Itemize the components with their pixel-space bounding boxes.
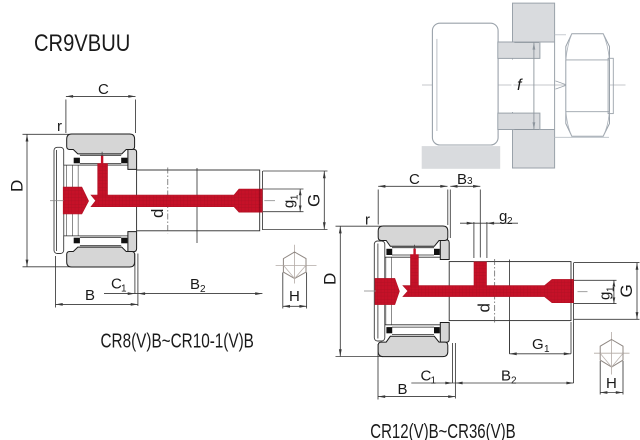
svg-text:1: 1	[544, 344, 550, 355]
svg-text:3: 3	[467, 176, 473, 187]
svg-text:D: D	[8, 180, 27, 192]
svg-text:f: f	[517, 77, 523, 94]
svg-text:2: 2	[200, 284, 206, 295]
svg-text:2: 2	[507, 216, 513, 227]
svg-text:B: B	[398, 381, 408, 398]
svg-text:1: 1	[431, 376, 437, 387]
svg-text:CR8(V)B~CR10-1(V)B: CR8(V)B~CR10-1(V)B	[101, 330, 254, 352]
svg-text:C: C	[409, 171, 420, 188]
svg-text:C: C	[98, 81, 109, 98]
svg-text:1: 1	[290, 194, 301, 200]
svg-text:d: d	[148, 209, 167, 218]
svg-text:G: G	[617, 284, 636, 297]
svg-text:D: D	[320, 273, 339, 285]
svg-text:CR9VBUU: CR9VBUU	[34, 29, 130, 56]
svg-text:B: B	[190, 276, 200, 293]
svg-text:1: 1	[606, 286, 617, 292]
svg-text:H: H	[606, 375, 617, 392]
svg-text:B: B	[85, 287, 95, 304]
svg-text:G: G	[305, 194, 324, 207]
svg-text:r: r	[57, 118, 62, 135]
svg-text:d: d	[475, 303, 494, 312]
svg-text:G: G	[532, 336, 544, 353]
svg-text:CR12(V)B~CR36(V)B: CR12(V)B~CR36(V)B	[370, 420, 515, 440]
svg-text:B: B	[457, 171, 467, 188]
svg-text:H: H	[289, 288, 300, 305]
svg-text:B: B	[501, 368, 511, 385]
svg-text:1: 1	[121, 284, 127, 295]
svg-text:2: 2	[511, 376, 517, 387]
